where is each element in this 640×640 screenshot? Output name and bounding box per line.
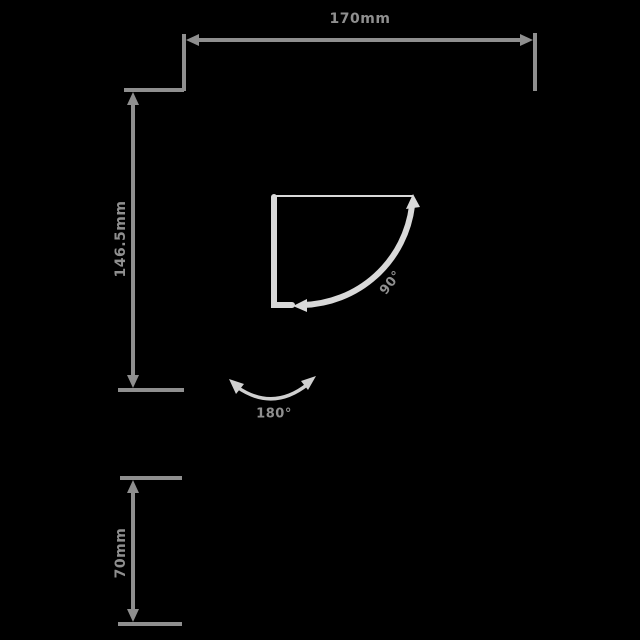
left-height-label: 146.5mm xyxy=(113,201,129,278)
door-swing-shape xyxy=(274,194,420,312)
rotation-arc xyxy=(237,384,308,399)
arrowhead-right-icon xyxy=(520,34,533,46)
arrowhead-down-icon xyxy=(127,375,139,388)
dimension-drawing xyxy=(0,0,640,640)
door-leaf-line xyxy=(274,197,292,305)
arrowhead-up-icon xyxy=(127,92,139,105)
top-width-label: 170mm xyxy=(330,11,391,27)
top-width-dimension xyxy=(184,33,535,91)
arrowhead-left-icon xyxy=(186,34,199,46)
sweep-angle-label: 180° xyxy=(256,407,292,422)
swing-arc-start-arrowhead-icon xyxy=(293,299,307,312)
arrowhead-down-icon xyxy=(127,609,139,622)
arrowhead-up-icon xyxy=(127,480,139,493)
bottom-height-label: 70mm xyxy=(113,528,129,579)
technical-drawing-canvas: 170mm 146.5mm 70mm 90° 180° xyxy=(0,0,640,640)
swing-arc xyxy=(303,206,412,305)
rotation-arc-dimension xyxy=(229,376,316,399)
